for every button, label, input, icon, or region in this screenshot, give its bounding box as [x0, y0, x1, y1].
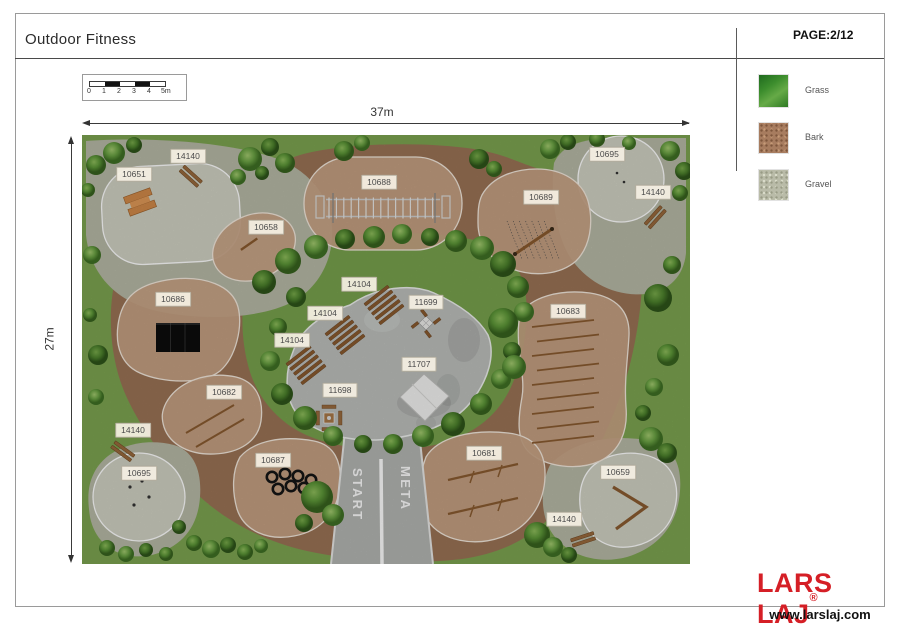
header-rule	[15, 58, 884, 59]
scale-tick: 0	[87, 88, 91, 95]
texture-overlay	[82, 135, 690, 564]
legend-swatch-grass	[758, 74, 789, 108]
legend-swatch-gravel	[758, 169, 789, 201]
scale-segment	[120, 82, 135, 86]
scale-tick: 1	[102, 88, 106, 95]
page-number: PAGE:2/12	[793, 28, 853, 42]
legend-swatch-bark	[758, 122, 789, 154]
arrow-right-icon	[682, 120, 690, 126]
scale-segment	[105, 82, 120, 86]
site-plan: START META	[82, 135, 690, 564]
registered-icon: ®	[810, 592, 819, 604]
scale-bar-segments	[89, 81, 166, 87]
legend-label-grass: Grass	[805, 85, 829, 95]
legend-label-gravel: Gravel	[805, 179, 832, 189]
arrow-left-icon	[82, 120, 90, 126]
panel-divider	[736, 28, 737, 171]
website-link[interactable]: www.larslaj.com	[760, 607, 880, 622]
scale-tick: 4	[147, 88, 151, 95]
arrow-down-icon	[68, 555, 74, 563]
scale-segment	[150, 82, 165, 86]
width-dimension-label: 37m	[352, 105, 412, 119]
width-dimension-line	[86, 123, 689, 124]
scale-segment	[90, 82, 105, 86]
legend-label-bark: Bark	[805, 132, 824, 142]
arrow-up-icon	[68, 136, 74, 144]
scale-end-label: 5m	[161, 88, 171, 95]
scale-tick: 2	[117, 88, 121, 95]
page-title: Outdoor Fitness	[25, 31, 136, 48]
height-dimension-line	[71, 138, 72, 559]
site-plan-drawing: START META	[82, 135, 690, 564]
scale-bar: 0 1 2 3 4 5m	[82, 74, 187, 101]
height-dimension-label: 27m	[43, 327, 57, 350]
scale-segment	[135, 82, 150, 86]
scale-tick: 3	[132, 88, 136, 95]
